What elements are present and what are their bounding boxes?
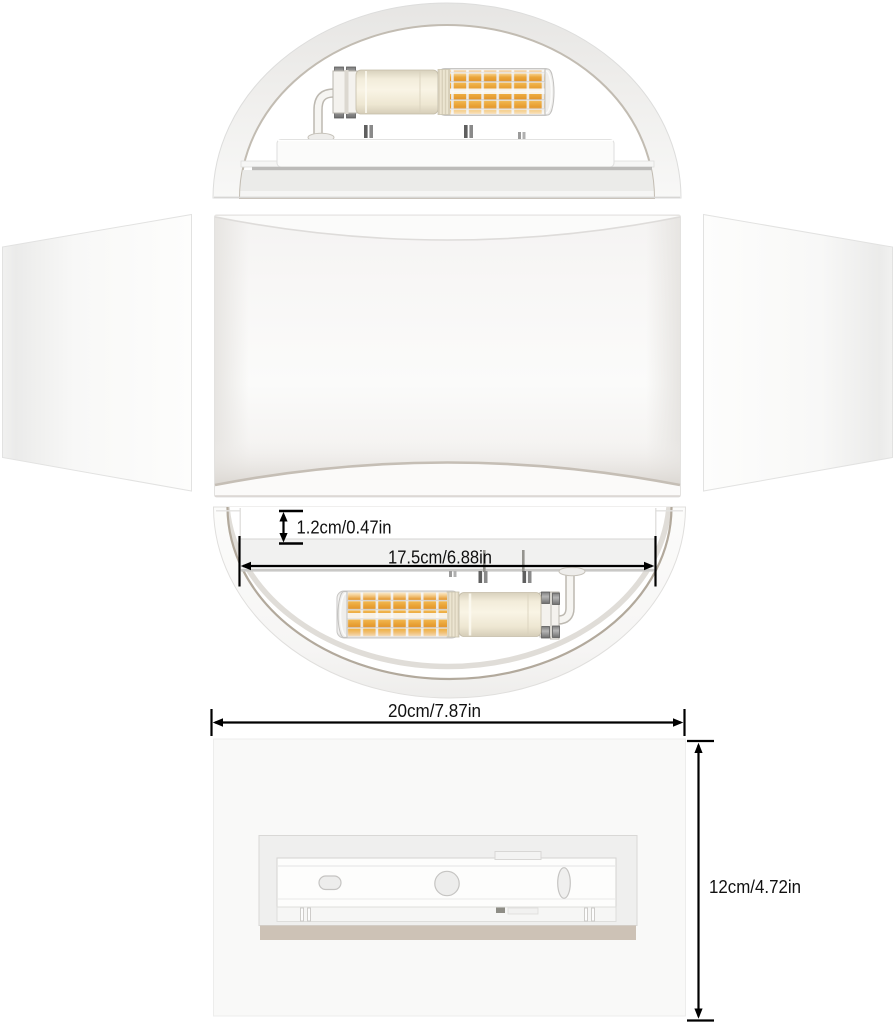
svg-text:1.2cm/0.47in: 1.2cm/0.47in xyxy=(297,517,392,538)
svg-text:17.5cm/6.88in: 17.5cm/6.88in xyxy=(388,547,492,568)
svg-text:12cm/4.72in: 12cm/4.72in xyxy=(709,876,801,897)
svg-text:20cm/7.87in: 20cm/7.87in xyxy=(388,700,481,721)
